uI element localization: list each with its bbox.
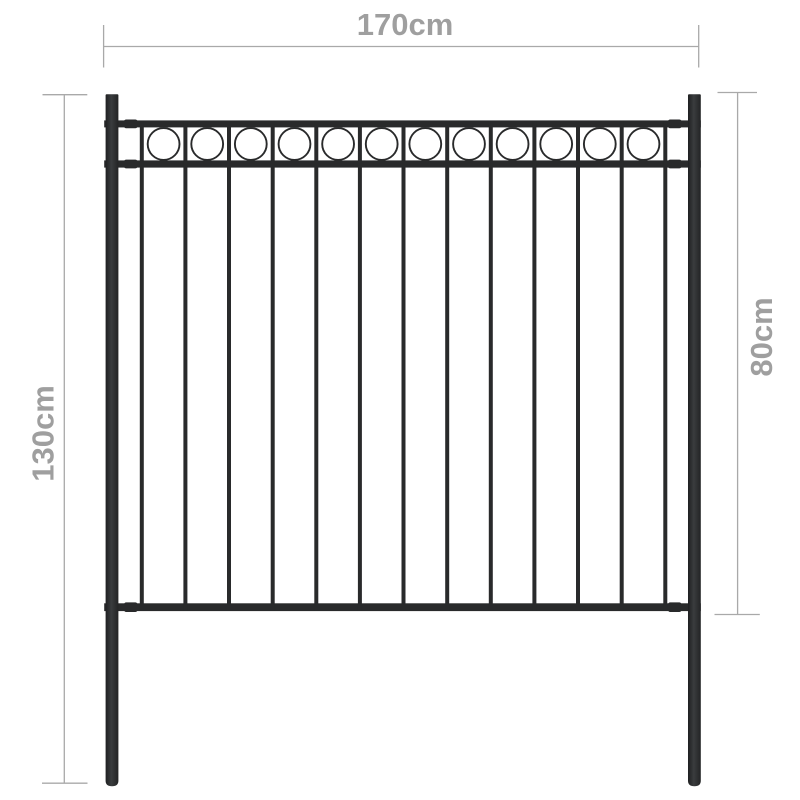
svg-text:170cm: 170cm	[357, 7, 454, 42]
svg-text:130cm: 130cm	[26, 385, 61, 482]
svg-text:80cm: 80cm	[744, 297, 779, 376]
